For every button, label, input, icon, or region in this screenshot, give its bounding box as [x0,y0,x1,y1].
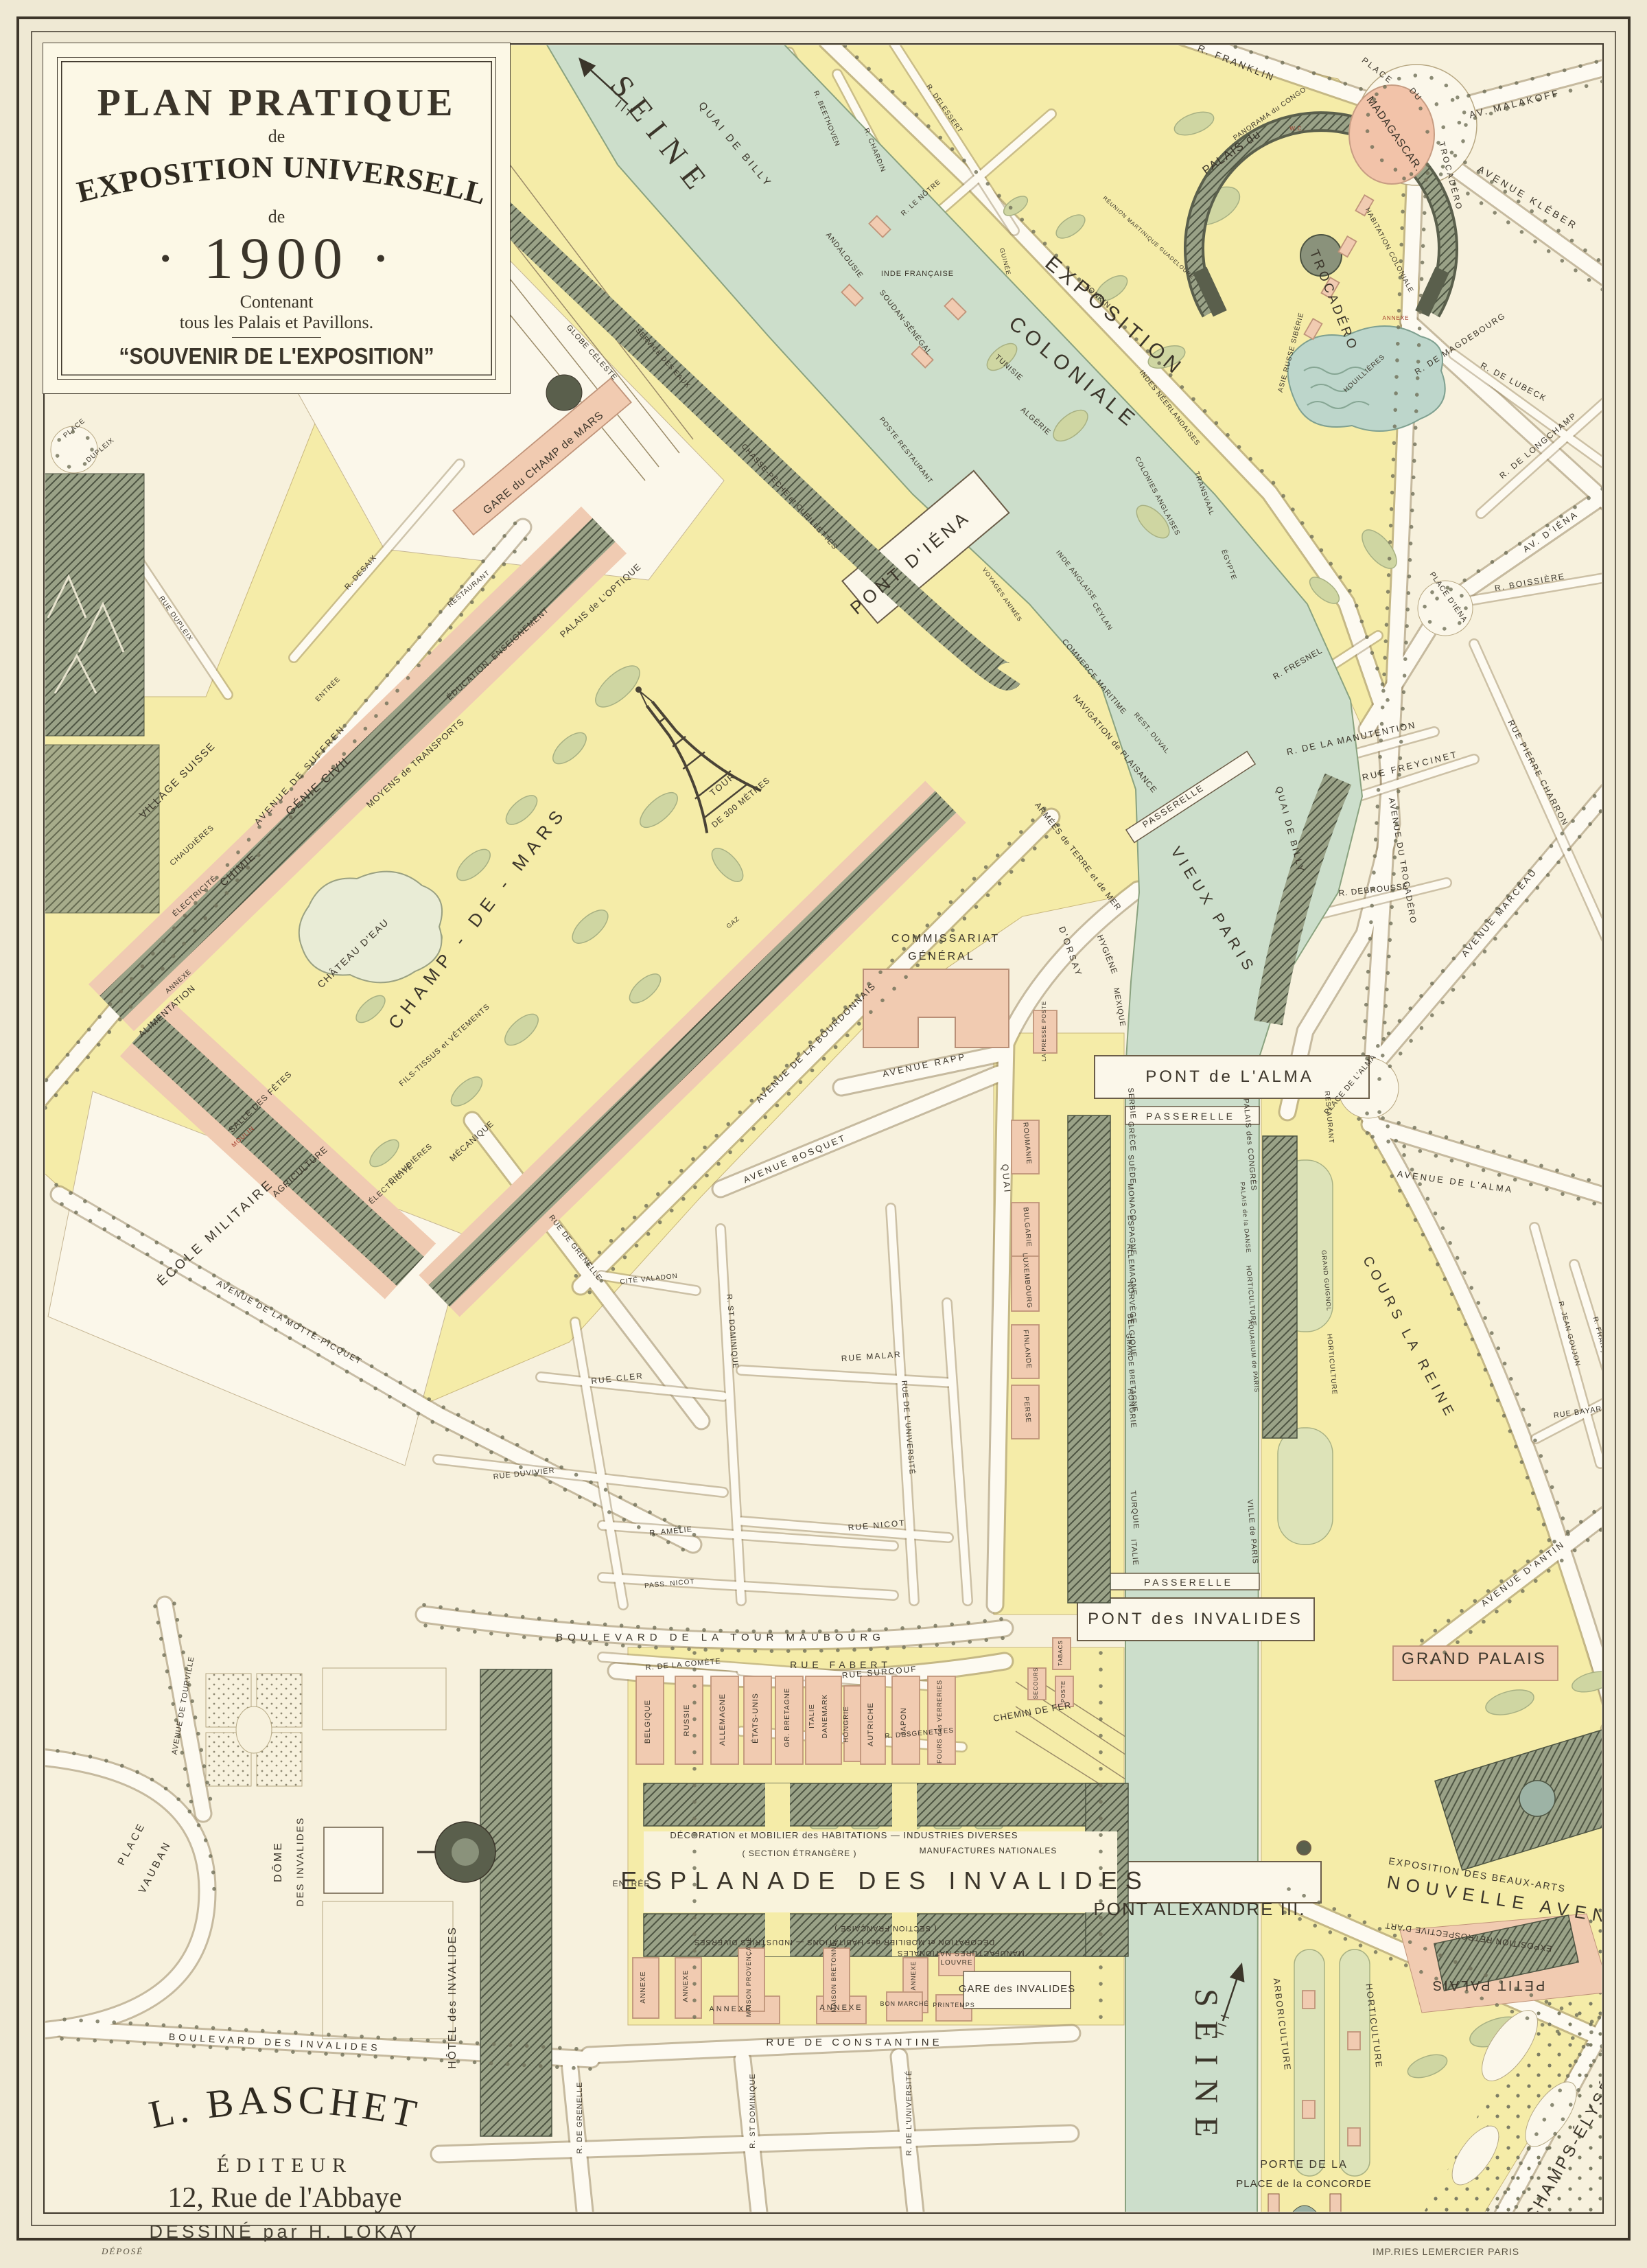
map-label-dome-invalides-2: DES INVALIDES [294,1817,305,1907]
publisher-name: L. BASCHET [145,2079,425,2137]
map-label-bd-tour-maubourg: BOULEVARD DE LA TOUR MAUBOURG [556,1632,885,1643]
title-arch: L'EXPOSITION UNIVERSELLE [58,147,497,210]
map-label-passerelle-invalides: PASSERELLE [1144,1577,1233,1588]
publisher-drawn-by: DESSINÉ par H. LOKAY [65,2221,504,2243]
map-label-annexe-3: ANNEXE [1383,315,1410,321]
map-label-allemagne-espl: ALLEMAGNE [719,1693,727,1746]
map-label-autriche: AUTRICHE [867,1702,875,1746]
title-cartouche: PLAN PRATIQUE de L'EXPOSITION UNIVERSELL… [43,43,511,394]
title-de-1: de [58,126,495,147]
map-label-decoration-etrangere: DÉCORATION et MOBILIER des HABITATIONS —… [670,1830,1018,1840]
printer-imprint: IMP.RIES LEMERCIER PARIS [1372,2246,1519,2257]
title-divider [232,337,321,338]
globe-celeste-icon [546,375,582,410]
map-label-rue-grenelle-2: R. DE GRENELLE [576,2081,584,2153]
map-label-danemark: DANEMARK [821,1694,829,1739]
map-label-dome-invalides-1: DÔME [271,1841,284,1882]
publisher-role: ÉDITEUR [65,2154,504,2177]
dome-invalides-plan [324,1827,383,1893]
map-label-gare-invalides: GARE des INVALIDES [959,1983,1075,1995]
trocadero-basin [1288,326,1445,431]
map-label-louvre: LOUVRE [940,1959,972,1967]
map-label-rue-universite-2: R. DE L'UNIVERSITÉ [904,2070,913,2156]
map-label-etats-unis: ÉTATS-UNIS [751,1693,760,1744]
map-label-russie: RUSSIE [683,1704,691,1737]
map-label-hongrie-espl: HONGRIE [843,1706,850,1743]
map-label-fours-verreries: FOURS des VERRERIES [936,1680,943,1763]
publisher-block: L. BASCHET ÉDITEUR 12, Rue de l'Abbaye D… [65,2079,504,2243]
title-exposition: L'EXPOSITION UNIVERSELLE [58,147,490,210]
esplanade-band-north [644,1783,1117,1826]
map-label-tabacs: TABACS [1058,1640,1064,1665]
title-contenant: Contenant [58,292,495,312]
nations-pavilions [1068,1115,1110,1603]
deposit-mark: DÉPOSÉ [102,2246,143,2257]
map-label-section-francaise: ( SECTION FRANÇAISE ) [834,1924,936,1932]
map-label-decoration-francaise: DÉCORATION et MOBILIER des HABITATIONS —… [694,1938,994,1947]
publisher-arch: L. BASCHET [65,2079,504,2151]
map-label-poste-sud: POSTE [1060,1680,1066,1702]
map-label-commissariat-2: GÉNÉRAL [908,949,974,962]
map-label-entree-ouest: ENTRÉE [613,1878,651,1888]
map-label-secours: SECOURS [1033,1667,1039,1700]
map-label-printemps: PRINTEMPS [933,2002,975,2009]
map-label-maison-bretonne: MAISON BRETONNE [830,1942,837,2013]
map-label-seine-bottom: SEINE [1188,1989,1224,2151]
map-label-manufactures-1: MANUFACTURES NATIONALES [920,1846,1058,1855]
title-souvenir: “SOUVENIR DE L'EXPOSITION” [75,343,478,369]
map-label-petit-palais: PETIT PALAIS [1431,1978,1545,1993]
map-label-commissariat-1: COMMISSARIAT [891,933,1000,945]
map-label-belgique-espl: BELGIQUE [644,1700,652,1744]
map-label-passerelle-alma: PASSERELLE [1146,1111,1235,1122]
title-palais: tous les Palais et Pavillons. [58,312,495,333]
map-label-rue-st-dominique-2: R. ST DOMINIQUE [749,2073,757,2149]
map-label-porte-concorde: PORTE DE LA [1260,2159,1348,2171]
map-label-annexe-5: ANNEXE [682,1969,690,2002]
map-label-annexe-7: ANNEXE [819,2004,863,2012]
map-page: SEINESEINEPONT D'IÉNAPONT de L'ALMAPASSE… [0,0,1647,2268]
esplanade-band-south [644,1914,1117,1956]
village-suisse-buildings [43,745,159,913]
map-label-la-presse-poste: LA PRESSE POSTE [1041,1001,1047,1061]
map-label-pont-invalides: PONT des INVALIDES [1088,1610,1303,1628]
map-label-esplanade-invalides: ESPLANADE DES INVALIDES [620,1866,1150,1895]
map-label-rue-fabert: RUE FABERT [790,1659,891,1670]
right-bank-pavilions [1263,1136,1297,1438]
map-label-grand-palais: GRAND PALAIS [1401,1650,1547,1668]
map-label-place-concorde: PLACE de la CONCORDE [1236,2178,1372,2190]
map-label-pont-alma: PONT de L'ALMA [1145,1067,1314,1086]
svg-text:L'EXPOSITION UNIVERSELLE: L'EXPOSITION UNIVERSELLE [58,147,490,210]
map-label-rue-constantine: RUE DE CONSTANTINE [766,2037,942,2048]
map-label-italie-espl: ITALIE [808,1704,816,1728]
map-label-bon-marche: BON MARCHÉ [880,2000,928,2007]
map-label-hotel-invalides: HÔTEL des INVALIDES [445,1926,458,2069]
map-label-pont-alexandre-iii: PONT ALEXANDRE III. [1093,1899,1305,1919]
map-label-annexe-4: ANNEXE [640,1971,647,2003]
title-year: · 1900 · [58,229,495,288]
publisher-address: 12, Rue de l'Abbaye [65,2182,504,2214]
svg-text:L. BASCHET: L. BASCHET [145,2079,425,2137]
map-label-annexe-6: ANNEXE [709,2005,752,2013]
map-label-gr-bretagne: GR. BRETAGNE [784,1688,791,1748]
map-label-section-etrangere: ( SECTION ÉTRANGÈRE ) [742,1848,856,1858]
map-title: PLAN PRATIQUE [58,81,495,125]
map-label-annexe-8: ANNEXE [910,1960,917,1990]
map-label-manufactures-2: MANUFACTURES NATIONALES [897,1949,1025,1957]
map-label-inde-francaise: INDE FRANÇAISE [881,270,954,278]
map-label-wc: W.C. [1289,126,1304,132]
